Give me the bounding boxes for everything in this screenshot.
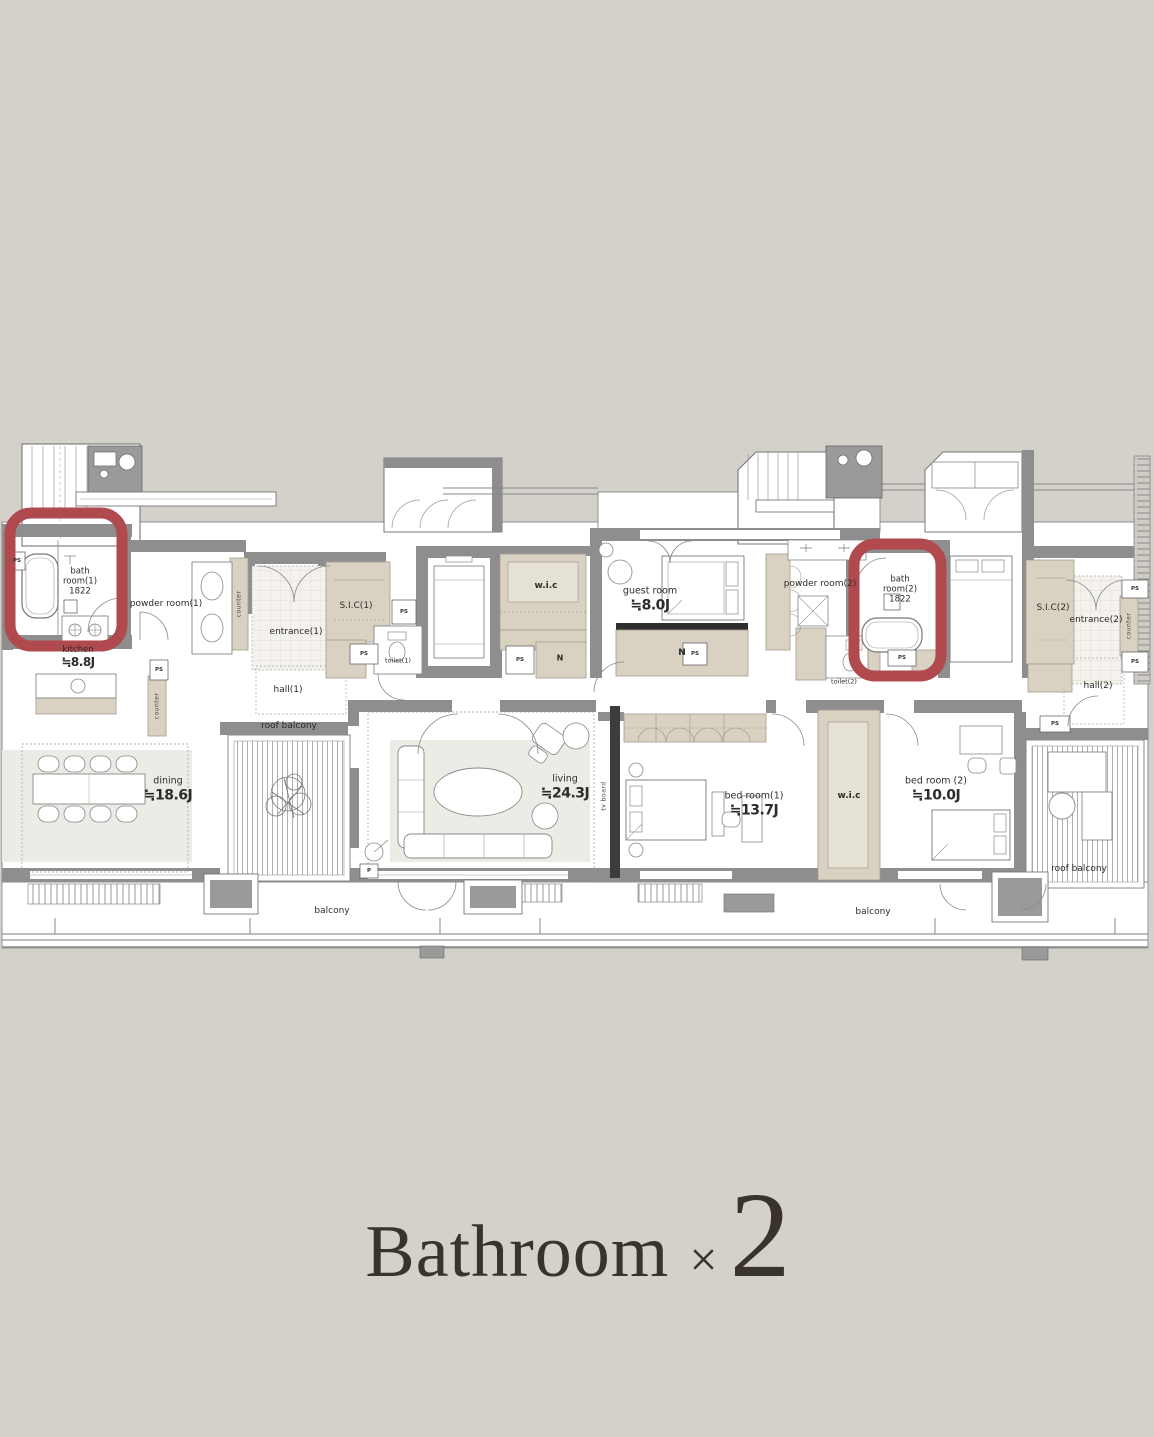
label-ps-10: PS	[1051, 721, 1059, 727]
label-counter-3: counter	[1126, 613, 1133, 640]
caption-times-sign: ×	[689, 1231, 717, 1287]
label-counter-2: counter	[154, 693, 161, 720]
caption-count: 2	[730, 1168, 789, 1303]
label-ps-2: PS	[155, 667, 163, 673]
label-ps-5: PS	[516, 657, 524, 663]
roof-balcony-right	[1026, 740, 1144, 888]
label-p: P	[367, 868, 371, 874]
elevator	[428, 556, 490, 666]
label-ps-8: PS	[1131, 586, 1139, 592]
unit-divider-wall	[610, 706, 620, 878]
label-ps-4: PS	[360, 651, 368, 657]
label-ps-3: PS	[400, 609, 408, 615]
caption-title: Bathroom×2	[0, 1175, 1154, 1297]
label-ps-6: PS	[691, 651, 699, 657]
floorplan-page: bath room(1)1822 powder room(1) kitchen≒…	[0, 0, 1154, 1437]
powder-room-1-fixtures	[192, 562, 232, 654]
toilet-1	[374, 626, 422, 674]
label-ps-9: PS	[1131, 659, 1139, 665]
upper-closet-bump	[384, 458, 502, 532]
label-ps-7: PS	[898, 655, 906, 661]
caption-word: Bathroom	[365, 1211, 669, 1293]
roof-balcony-left	[228, 735, 350, 881]
bedroom-top-bump	[925, 450, 1034, 532]
label-tv-board: tv board	[601, 781, 608, 810]
label-ps-1: PS	[13, 558, 21, 564]
upper-bed-right	[950, 556, 1012, 662]
balcony-strip	[2, 878, 1148, 960]
dining-furniture	[2, 744, 192, 872]
label-counter-1: counter	[236, 591, 243, 618]
